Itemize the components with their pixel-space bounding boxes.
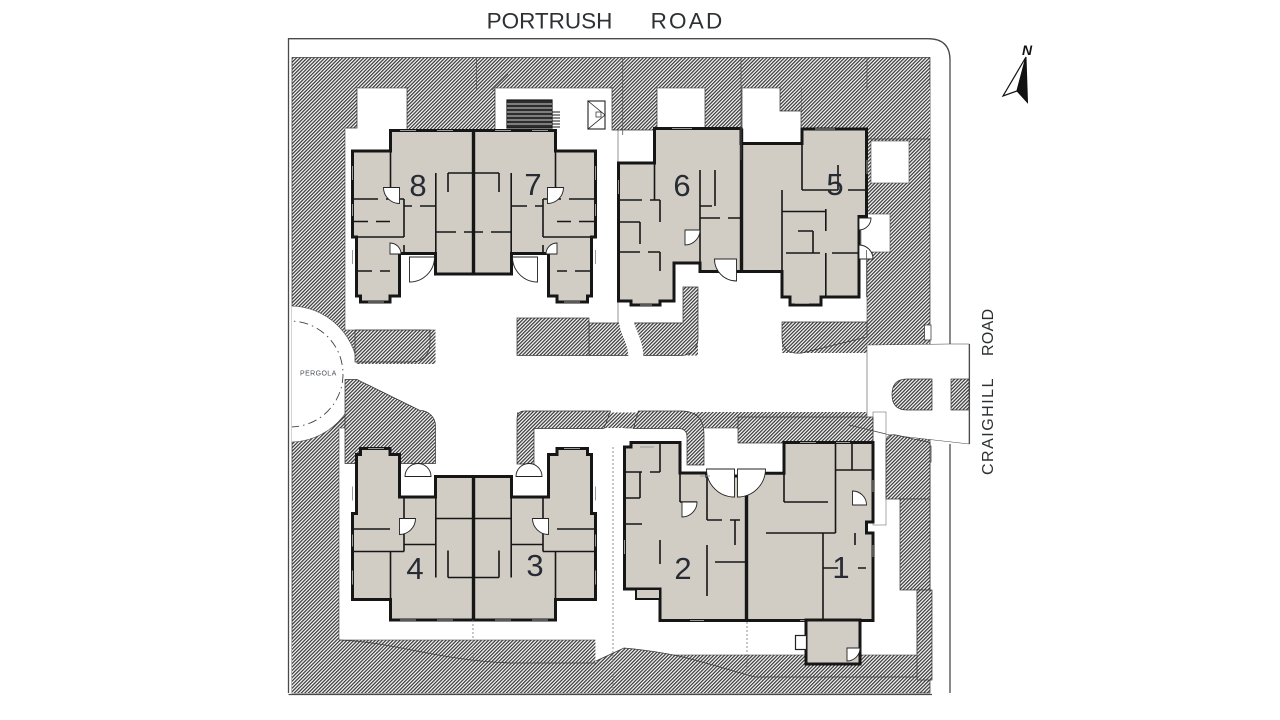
svg-text:CRAIGHILL: CRAIGHILL [980, 377, 997, 475]
svg-text:5: 5 [826, 167, 843, 202]
svg-text:3: 3 [526, 548, 543, 583]
svg-text:4: 4 [406, 551, 423, 586]
svg-text:PERGOLA: PERGOLA [300, 371, 337, 378]
svg-text:ROAD: ROAD [980, 309, 997, 356]
svg-text:N: N [1022, 42, 1033, 58]
svg-text:PORTRUSH: PORTRUSH [487, 9, 613, 34]
svg-text:ROAD: ROAD [651, 9, 725, 34]
svg-text:2: 2 [674, 551, 691, 586]
svg-text:7: 7 [524, 167, 541, 202]
svg-text:6: 6 [673, 168, 690, 203]
svg-text:8: 8 [409, 168, 426, 203]
svg-text:1: 1 [832, 550, 849, 585]
